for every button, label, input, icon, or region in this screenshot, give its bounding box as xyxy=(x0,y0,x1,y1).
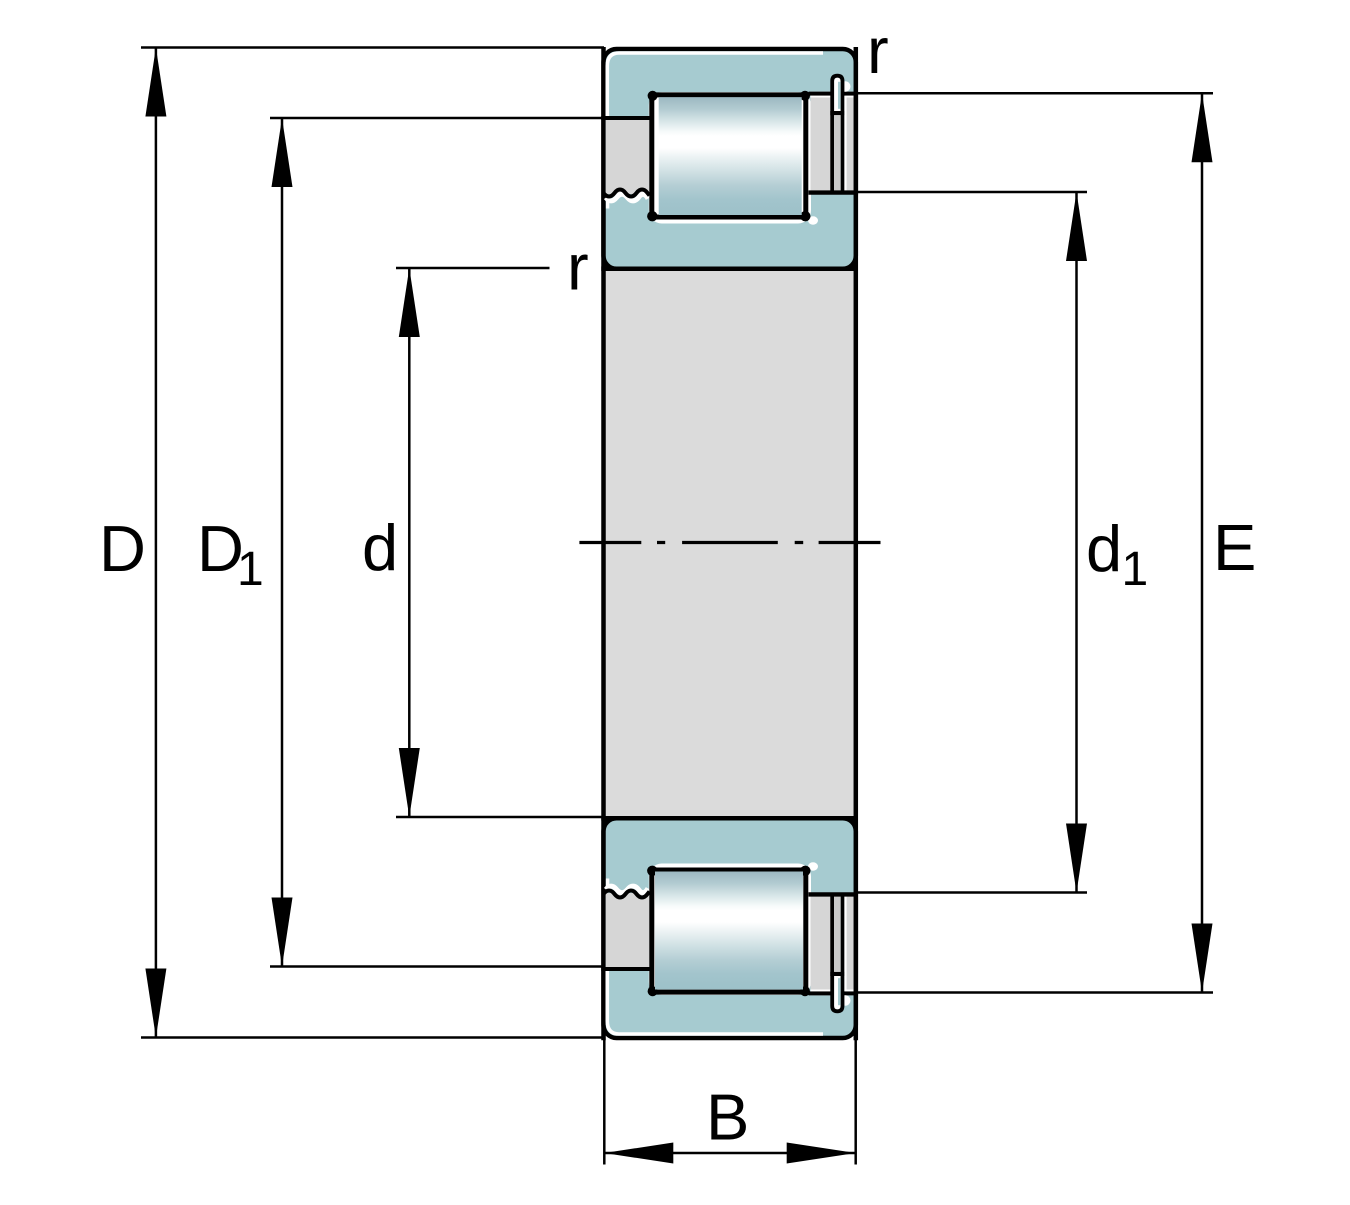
svg-text:D: D xyxy=(99,512,146,585)
svg-text:d: d xyxy=(1086,512,1122,585)
svg-text:1: 1 xyxy=(237,543,264,596)
svg-text:r: r xyxy=(567,231,589,304)
svg-text:d: d xyxy=(362,511,398,584)
svg-text:B: B xyxy=(706,1081,749,1154)
svg-text:1: 1 xyxy=(1122,543,1149,596)
svg-text:E: E xyxy=(1213,511,1256,584)
svg-text:r: r xyxy=(867,14,889,87)
